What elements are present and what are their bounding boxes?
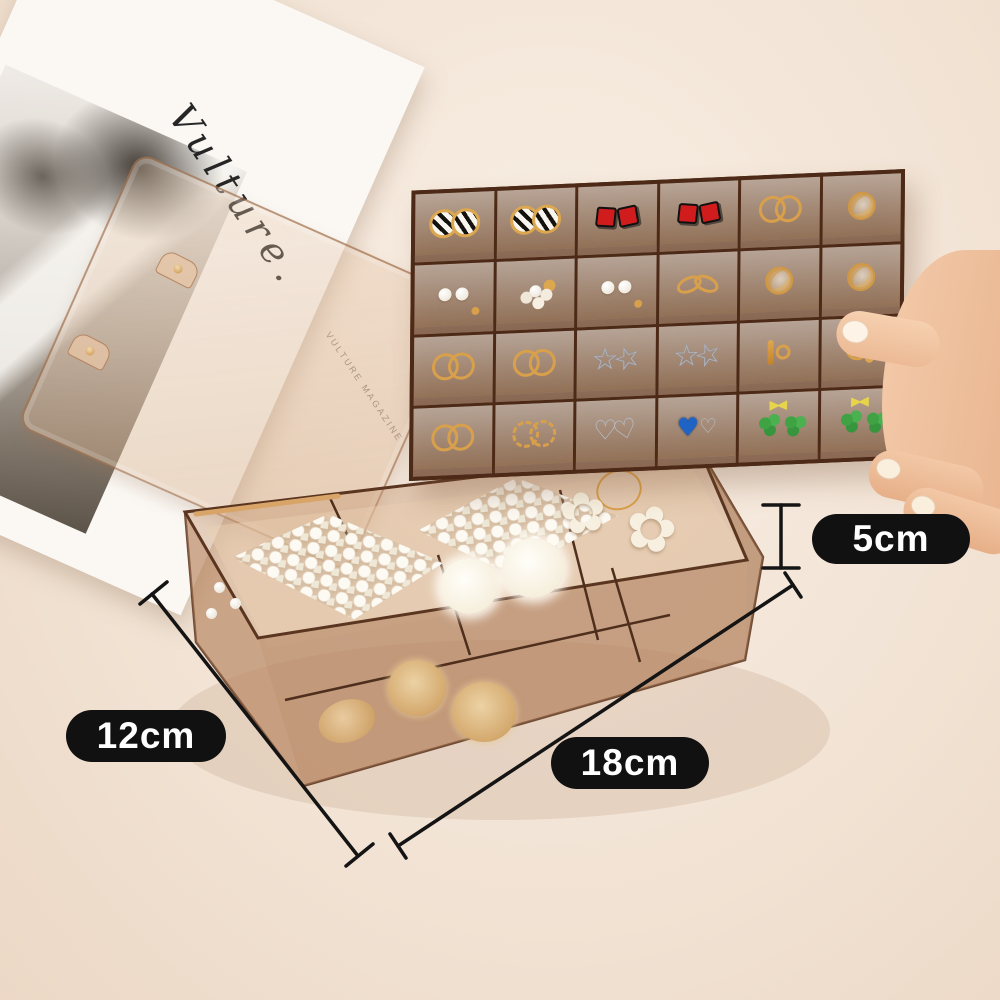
width-label-text: 12cm [97, 715, 196, 757]
product-photo-scene: { "scene": { "background_color": "#f6ebd… [0, 0, 1000, 1000]
dimension-lines [0, 0, 1000, 1000]
length-label: 18cm [551, 737, 709, 789]
length-label-text: 18cm [581, 742, 680, 784]
height-dimension-line [763, 505, 799, 568]
width-label: 12cm [66, 710, 226, 762]
height-label-text: 5cm [852, 518, 929, 560]
length-dimension-line [390, 573, 801, 858]
height-label: 5cm [812, 514, 970, 564]
